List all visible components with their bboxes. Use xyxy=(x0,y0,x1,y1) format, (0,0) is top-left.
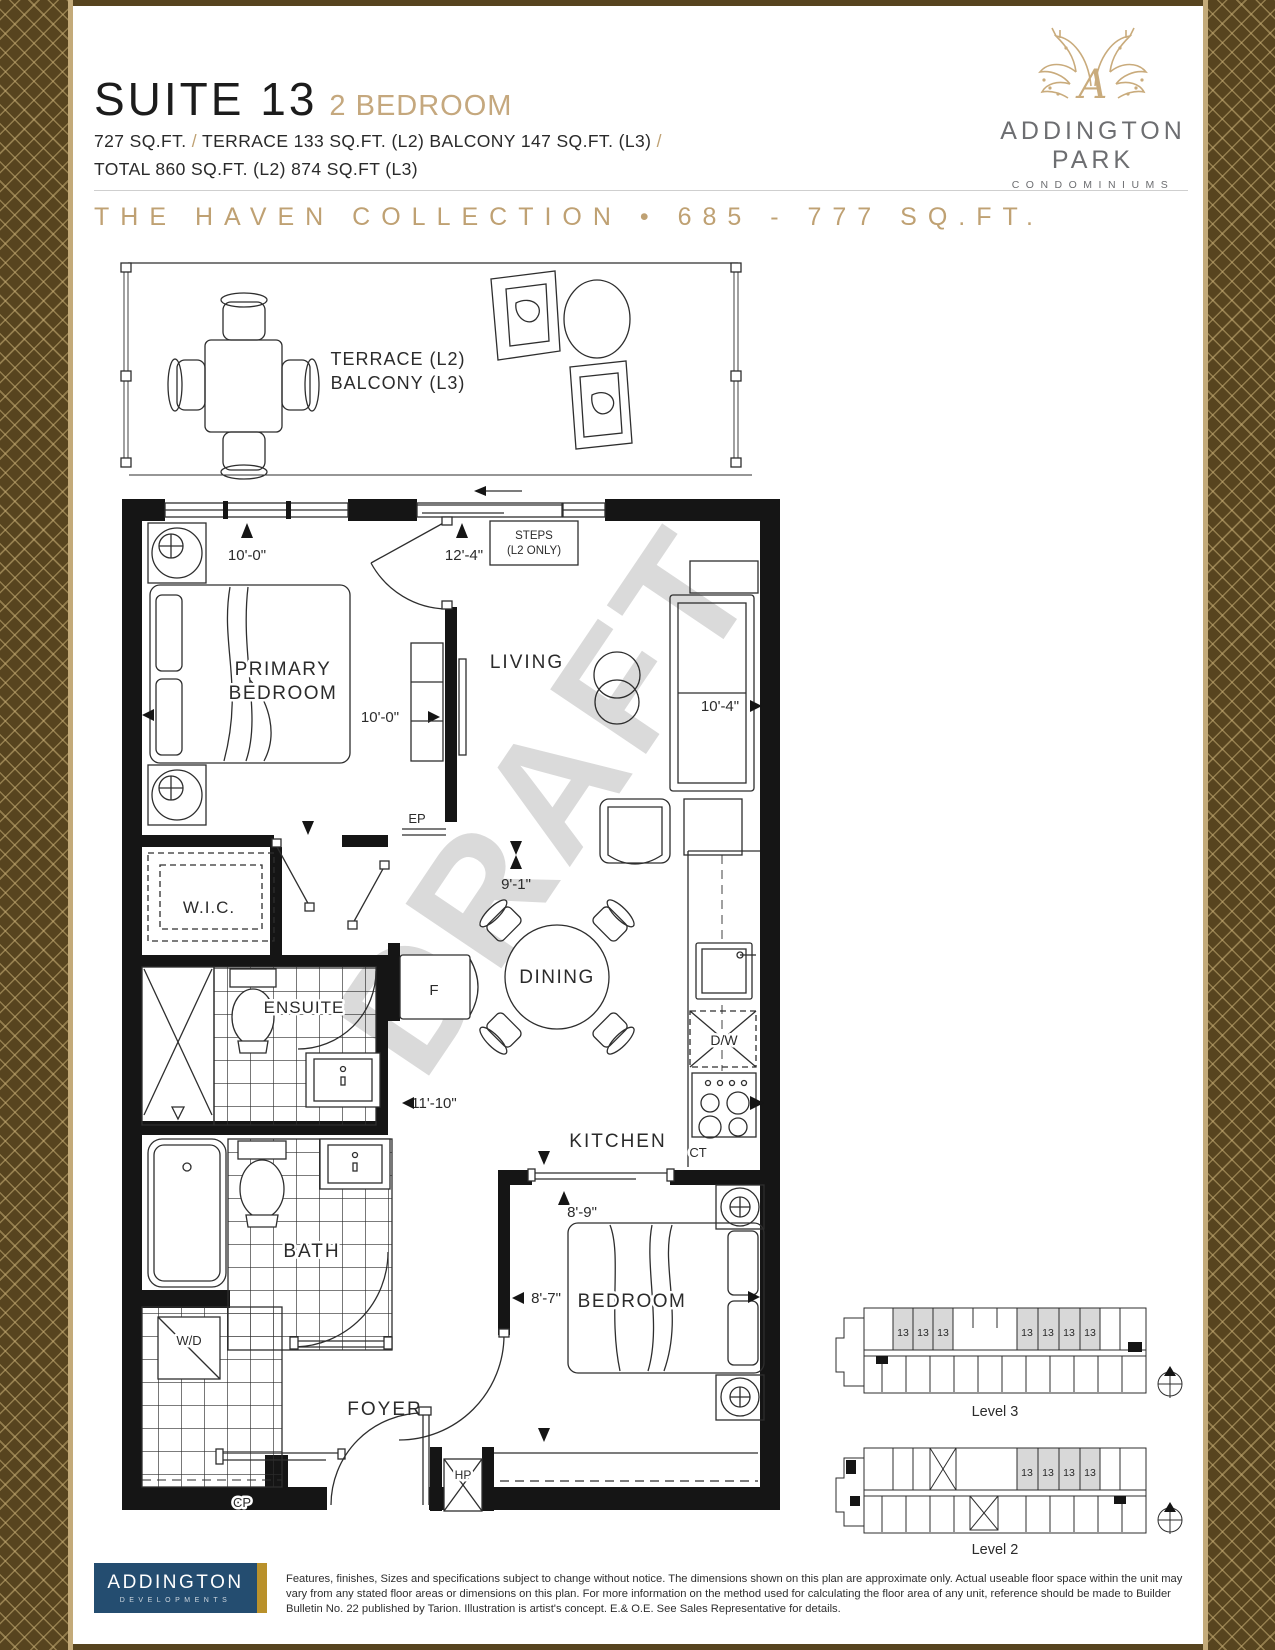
label-bedroom2: BEDROOM xyxy=(578,1291,687,1312)
label-ensuite: ENSUITE xyxy=(264,998,345,1017)
dim-arrow xyxy=(512,1292,524,1304)
dim-10-0-primary: 10'-0" xyxy=(361,709,399,726)
area-line-1: 727 SQ.FT. / TERRACE 133 SQ.FT. (L2) BAL… xyxy=(94,128,734,154)
ensuite-room xyxy=(142,967,380,1125)
unit-13: 13 xyxy=(1021,1467,1033,1479)
label-wic: W.I.C. xyxy=(183,898,235,917)
unit-13: 13 xyxy=(897,1327,909,1339)
label-ep: EP xyxy=(408,811,425,826)
developer-logo: ADDINGTON DEVELOPMENTS xyxy=(94,1563,267,1613)
peacock-crest-icon: A xyxy=(1008,22,1178,117)
area-line-2: TOTAL 860 SQ.FT. (L2) 874 SQ.FT (L3) xyxy=(94,156,734,182)
label-foyer: FOYER xyxy=(347,1399,422,1420)
steps-note: STEPS (L2 ONLY) xyxy=(490,521,578,565)
label-living: LIVING xyxy=(490,652,564,673)
label-washer-dryer: W/D xyxy=(176,1333,201,1348)
brand-logo: A ADDINGTON PARK CONDOMINIUMS xyxy=(985,22,1201,191)
dim-12-4: 12'-4" xyxy=(445,547,483,564)
unit-13: 13 xyxy=(1021,1327,1033,1339)
area-separator: / xyxy=(192,131,197,151)
bottom-border-bar xyxy=(73,1644,1203,1650)
brand-name-line1: ADDINGTON xyxy=(985,117,1201,146)
label-cooktop: CT xyxy=(689,1145,706,1160)
developer-tagline: DEVELOPMENTS xyxy=(120,1597,232,1604)
unit-13: 13 xyxy=(1084,1467,1096,1479)
kitchen-counter xyxy=(688,851,764,1167)
laundry-foyer xyxy=(142,1307,758,1511)
keyplan-caption-level3: Level 3 xyxy=(972,1404,1019,1420)
unit-13: 13 xyxy=(1063,1467,1075,1479)
label-kitchen: KITCHEN xyxy=(569,1131,666,1152)
fridge xyxy=(400,955,478,1019)
unit-13: 13 xyxy=(1063,1327,1075,1339)
dim-8-7: 8'-7" xyxy=(531,1290,561,1307)
right-border-pattern xyxy=(1203,0,1275,1650)
label-cp: CP xyxy=(233,1495,251,1510)
keyplan-level2: 13 13 13 13 Level 2 xyxy=(830,1440,1190,1562)
dim-top: 10'-0" 12'-4" xyxy=(228,523,483,564)
collection-banner: THE HAVEN COLLECTION • 685 - 777 SQ.FT. xyxy=(94,190,1188,232)
label-steps-l2only: (L2 ONLY) xyxy=(507,545,561,557)
dim-10-4: 10'-4" xyxy=(701,698,739,715)
top-border-bar xyxy=(73,0,1203,6)
label-primary-1: PRIMARY xyxy=(235,659,332,680)
compass-icon xyxy=(1158,1366,1182,1398)
label-dishwasher: D/W xyxy=(710,1032,738,1048)
compass-icon xyxy=(1158,1502,1182,1534)
dim-10-0-top: 10'-0" xyxy=(228,547,266,564)
area-separator: / xyxy=(657,131,662,151)
label-fridge: F xyxy=(429,982,438,999)
dim-8-9: 8'-9" xyxy=(567,1204,597,1221)
unit-13: 13 xyxy=(937,1327,949,1339)
terrace-lounge-set xyxy=(491,271,632,449)
unit-13: 13 xyxy=(917,1327,929,1339)
unit-13: 13 xyxy=(1042,1327,1054,1339)
area-sqft: 727 SQ.FT. xyxy=(94,131,187,151)
keyplan-caption-level2: Level 2 xyxy=(972,1542,1019,1558)
area-terrace-balcony: TERRACE 133 SQ.FT. (L2) BALCONY 147 SQ.F… xyxy=(202,131,651,151)
floorplan-brochure-page: SUITE 132 BEDROOM 727 SQ.FT. / TERRACE 1… xyxy=(0,0,1275,1650)
wic-closet xyxy=(148,853,274,941)
dim-arrow xyxy=(402,1097,414,1109)
keyplan-level3: 13 13 13 13 13 13 13 Level 3 xyxy=(830,1298,1190,1426)
label-steps: STEPS xyxy=(515,530,553,542)
label-bath: BATH xyxy=(283,1241,340,1262)
disclaimer-text: Features, finishes, Sizes and specificat… xyxy=(286,1572,1186,1617)
terrace-outline xyxy=(121,263,752,475)
label-primary-2: BEDROOM xyxy=(229,683,338,704)
label-balcony: BALCONY (L3) xyxy=(331,373,466,393)
brand-name-line2: PARK xyxy=(985,146,1201,175)
suite-subtitle: 2 BEDROOM xyxy=(329,90,512,122)
label-heat-pump: HP xyxy=(455,1468,472,1482)
floorplan-drawing: DRAFT TERRACE (L2) BALCO xyxy=(112,255,792,1525)
label-terrace: TERRACE (L2) xyxy=(330,349,465,369)
dim-9-1: 9'-1" xyxy=(501,876,531,893)
developer-name: ADDINGTON xyxy=(107,1572,243,1594)
left-border-pattern xyxy=(0,0,73,1650)
terrace-dining-set xyxy=(168,293,319,479)
unit-13: 13 xyxy=(1084,1327,1096,1339)
label-dining: DINING xyxy=(519,967,595,988)
unit-13: 13 xyxy=(1042,1467,1054,1479)
collection-banner-text: THE HAVEN COLLECTION • 685 - 777 SQ.FT. xyxy=(94,203,1044,231)
suite-title: SUITE 13 xyxy=(94,73,317,125)
header: SUITE 132 BEDROOM 727 SQ.FT. / TERRACE 1… xyxy=(94,72,734,183)
dim-11-10: 11'-10" xyxy=(411,1095,456,1112)
brand-monogram: A xyxy=(1075,62,1108,108)
